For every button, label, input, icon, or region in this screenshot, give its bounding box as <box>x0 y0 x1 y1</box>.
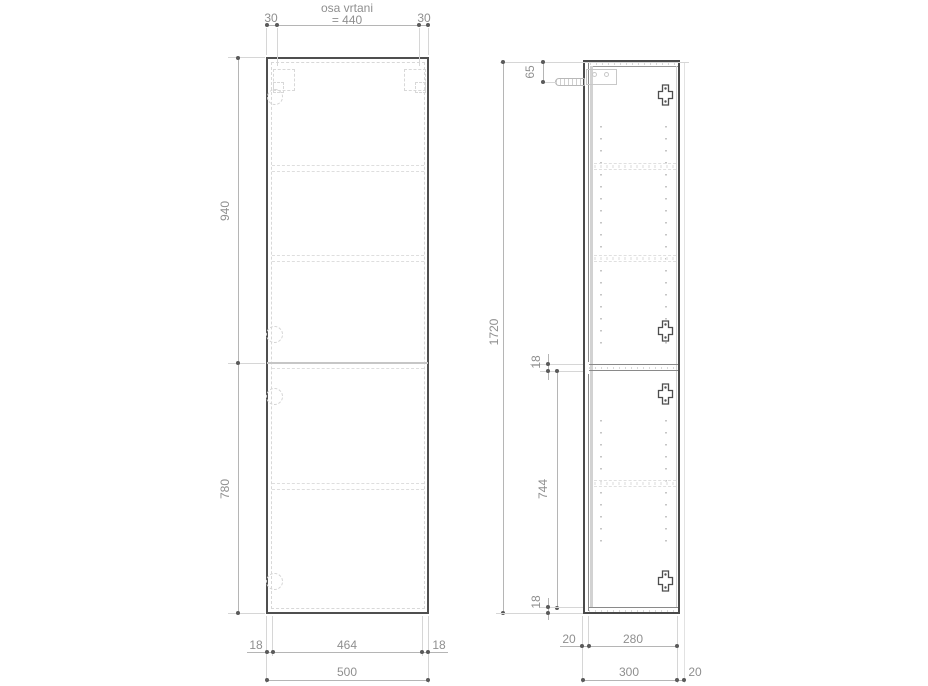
dim-dot <box>675 644 679 648</box>
dim-dot <box>580 644 584 648</box>
technical-drawing-canvas: osa vrtani = 440 30 30 940 780 18 4 <box>0 0 928 686</box>
dim-dot <box>555 369 559 373</box>
dim-line <box>543 62 544 82</box>
extension-line <box>677 616 678 683</box>
dim-dot <box>546 369 550 373</box>
dim-dot <box>546 611 550 615</box>
dim-label-20-wall: 20 <box>688 666 701 678</box>
dim-dot <box>546 362 550 366</box>
dim-label-20-door: 20 <box>562 633 575 645</box>
dim-line <box>560 646 677 647</box>
dim-line <box>503 62 504 613</box>
dim-label-744: 744 <box>537 479 549 499</box>
dim-dot <box>546 605 550 609</box>
dim-dot <box>581 678 585 682</box>
dim-dot <box>682 678 686 682</box>
dim-line <box>582 680 685 681</box>
dim-dot <box>501 60 505 64</box>
dim-label-300: 300 <box>619 666 639 678</box>
extension-line <box>543 82 557 83</box>
side-view-dimensions: 1720 65 18 744 18 20 280 <box>0 0 928 686</box>
dim-dot <box>587 644 591 648</box>
extension-line <box>500 62 689 63</box>
dim-line <box>548 354 549 380</box>
dim-label-65: 65 <box>524 65 536 78</box>
dim-dot <box>541 80 545 84</box>
dim-line <box>548 598 549 620</box>
dim-label-1720: 1720 <box>488 319 500 346</box>
extension-line <box>496 613 583 614</box>
dim-dot <box>675 678 679 682</box>
dim-dot <box>541 60 545 64</box>
dim-line <box>557 371 558 608</box>
extension-line <box>582 616 583 683</box>
dim-label-18-bottom: 18 <box>530 595 542 608</box>
dim-label-18-divider: 18 <box>530 355 542 368</box>
dim-label-280: 280 <box>623 633 643 645</box>
